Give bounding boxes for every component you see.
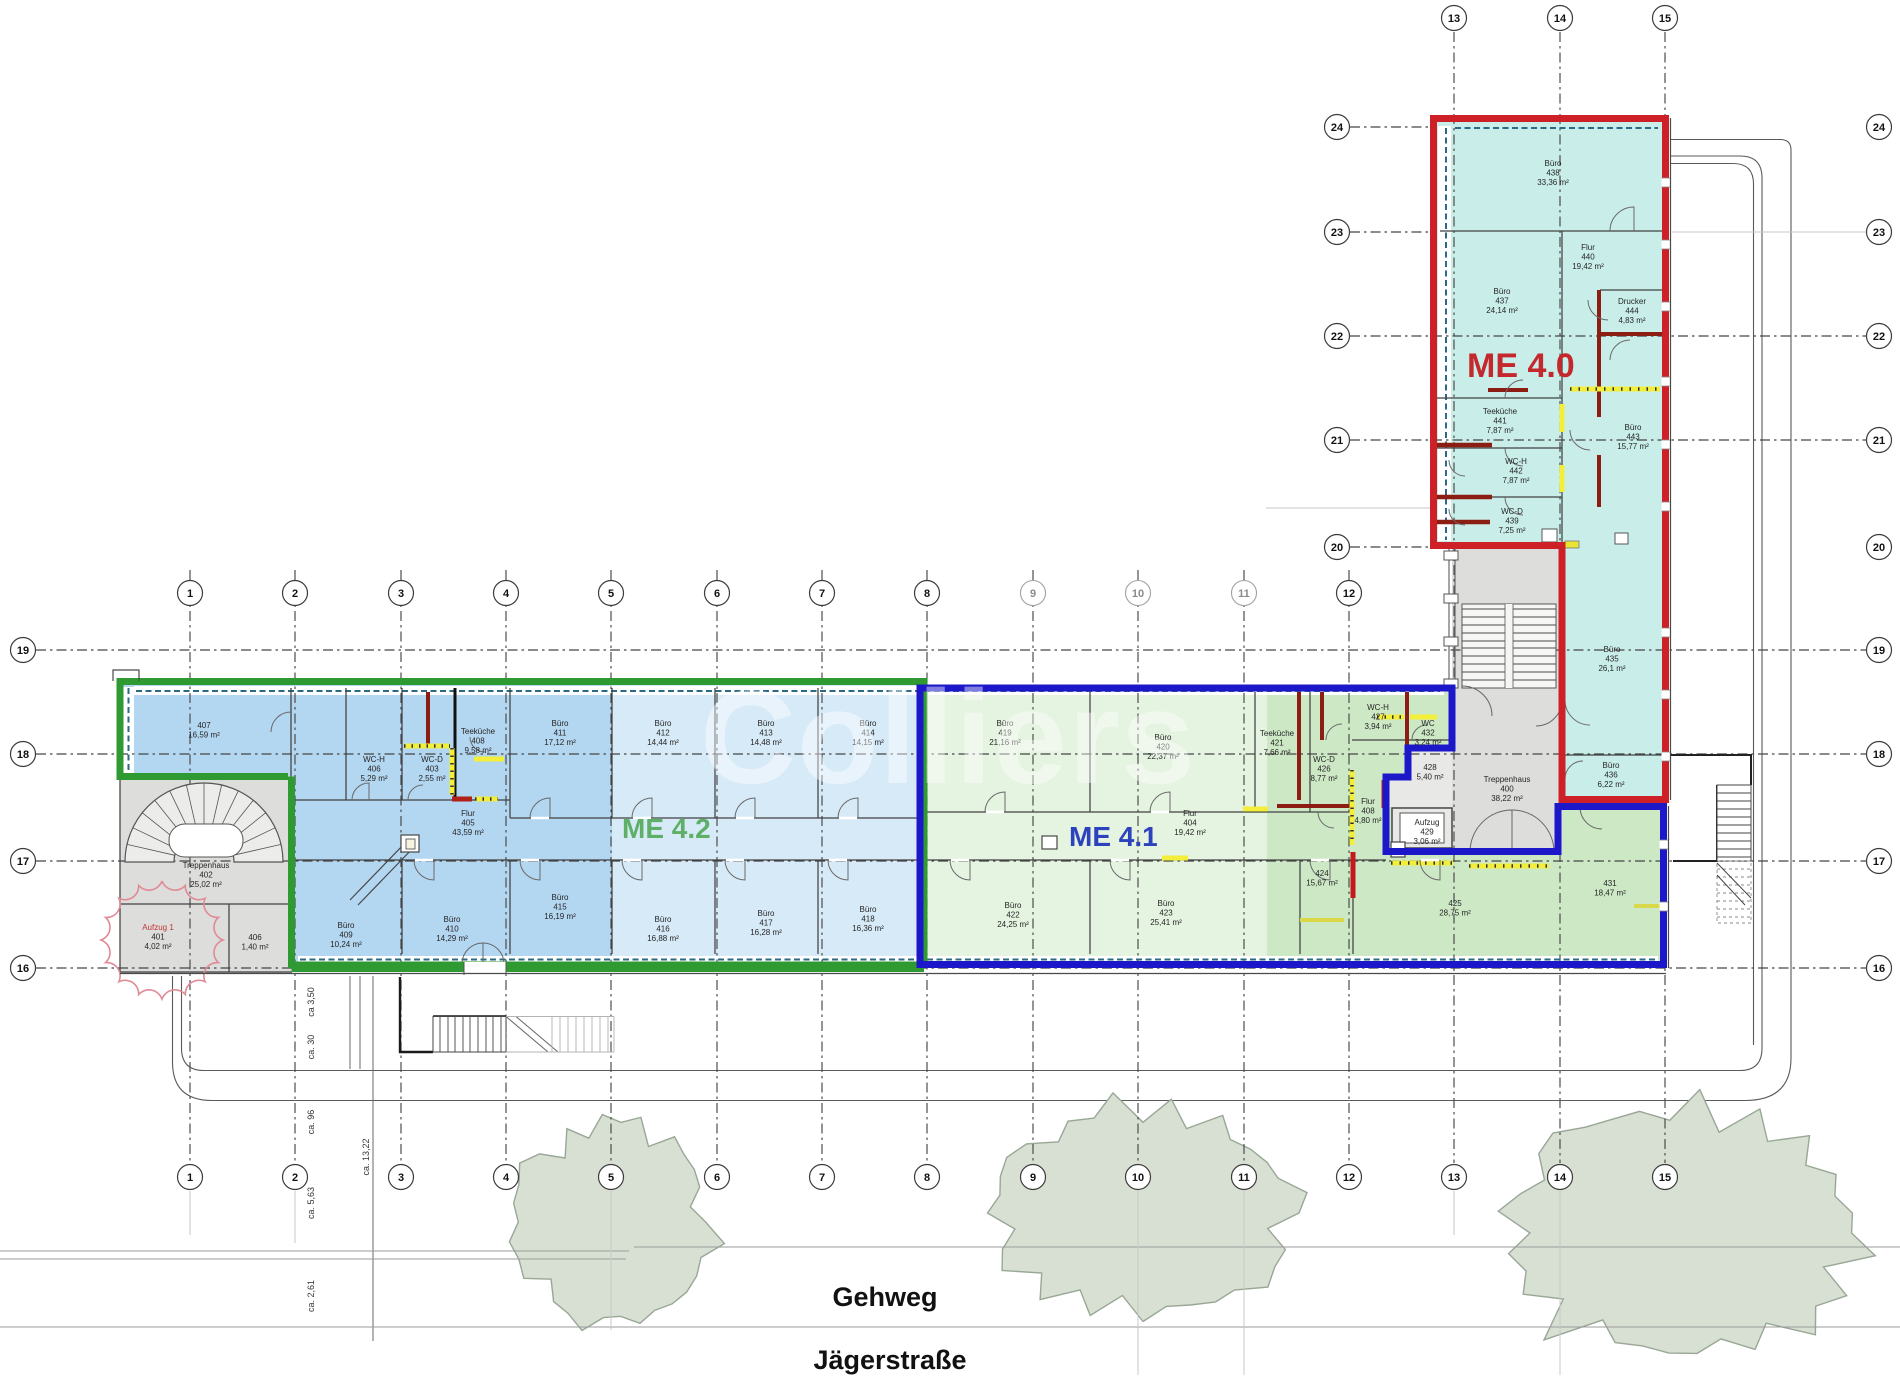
svg-text:9: 9 xyxy=(1030,588,1036,600)
svg-text:3: 3 xyxy=(398,1172,404,1184)
svg-text:10: 10 xyxy=(1132,1172,1144,1184)
svg-text:ME 4.0: ME 4.0 xyxy=(1467,347,1575,385)
svg-text:14: 14 xyxy=(1554,1172,1567,1184)
svg-text:22: 22 xyxy=(1873,331,1885,343)
svg-text:15: 15 xyxy=(1659,1172,1671,1184)
svg-text:11: 11 xyxy=(1238,588,1250,600)
svg-text:8: 8 xyxy=(924,1172,930,1184)
svg-text:16: 16 xyxy=(1873,963,1885,975)
svg-text:ca. 13,22: ca. 13,22 xyxy=(361,1138,371,1175)
svg-text:Jägerstraße: Jägerstraße xyxy=(813,1345,966,1375)
svg-text:4: 4 xyxy=(503,1172,510,1184)
svg-text:9: 9 xyxy=(1030,1172,1036,1184)
svg-text:13: 13 xyxy=(1448,13,1460,25)
svg-text:ME 4.2: ME 4.2 xyxy=(622,813,711,844)
svg-text:16: 16 xyxy=(17,963,29,975)
svg-text:14: 14 xyxy=(1554,13,1567,25)
svg-text:17: 17 xyxy=(17,856,29,868)
svg-text:10: 10 xyxy=(1132,588,1144,600)
svg-text:21: 21 xyxy=(1873,435,1885,447)
svg-text:4: 4 xyxy=(503,588,510,600)
svg-text:18: 18 xyxy=(1873,749,1885,761)
svg-text:21: 21 xyxy=(1331,435,1343,447)
svg-text:ME 4.1: ME 4.1 xyxy=(1069,821,1158,852)
svg-text:ca 3,50: ca 3,50 xyxy=(306,987,316,1017)
svg-text:ca. 5,63: ca. 5,63 xyxy=(306,1187,316,1219)
svg-text:17: 17 xyxy=(1873,856,1885,868)
svg-text:20: 20 xyxy=(1331,542,1343,554)
svg-text:8: 8 xyxy=(924,588,930,600)
svg-text:2: 2 xyxy=(292,588,298,600)
svg-text:7: 7 xyxy=(819,588,825,600)
svg-text:ca. 30: ca. 30 xyxy=(306,1035,316,1060)
svg-text:23: 23 xyxy=(1331,227,1343,239)
svg-text:1: 1 xyxy=(187,588,193,600)
svg-text:ca. 96: ca. 96 xyxy=(306,1110,316,1135)
svg-text:ca. 2,61: ca. 2,61 xyxy=(306,1280,316,1312)
svg-text:3: 3 xyxy=(398,588,404,600)
svg-text:Gehweg: Gehweg xyxy=(832,1282,937,1312)
svg-text:20: 20 xyxy=(1873,542,1885,554)
svg-text:11: 11 xyxy=(1238,1172,1250,1184)
svg-text:22: 22 xyxy=(1331,331,1343,343)
svg-text:15: 15 xyxy=(1659,13,1671,25)
svg-text:2: 2 xyxy=(292,1172,298,1184)
svg-text:13: 13 xyxy=(1448,1172,1460,1184)
svg-text:6: 6 xyxy=(714,1172,720,1184)
svg-text:12: 12 xyxy=(1343,1172,1355,1184)
svg-text:6: 6 xyxy=(714,588,720,600)
svg-text:12: 12 xyxy=(1343,588,1355,600)
svg-text:Colliers: Colliers xyxy=(700,664,1196,812)
svg-text:1: 1 xyxy=(187,1172,193,1184)
svg-text:7: 7 xyxy=(819,1172,825,1184)
svg-text:24: 24 xyxy=(1331,122,1344,134)
svg-text:19: 19 xyxy=(1873,645,1885,657)
svg-text:23: 23 xyxy=(1873,227,1885,239)
svg-text:18: 18 xyxy=(17,749,29,761)
svg-text:5: 5 xyxy=(608,1172,614,1184)
svg-text:24: 24 xyxy=(1873,122,1886,134)
svg-text:5: 5 xyxy=(608,588,614,600)
svg-text:19: 19 xyxy=(17,645,29,657)
